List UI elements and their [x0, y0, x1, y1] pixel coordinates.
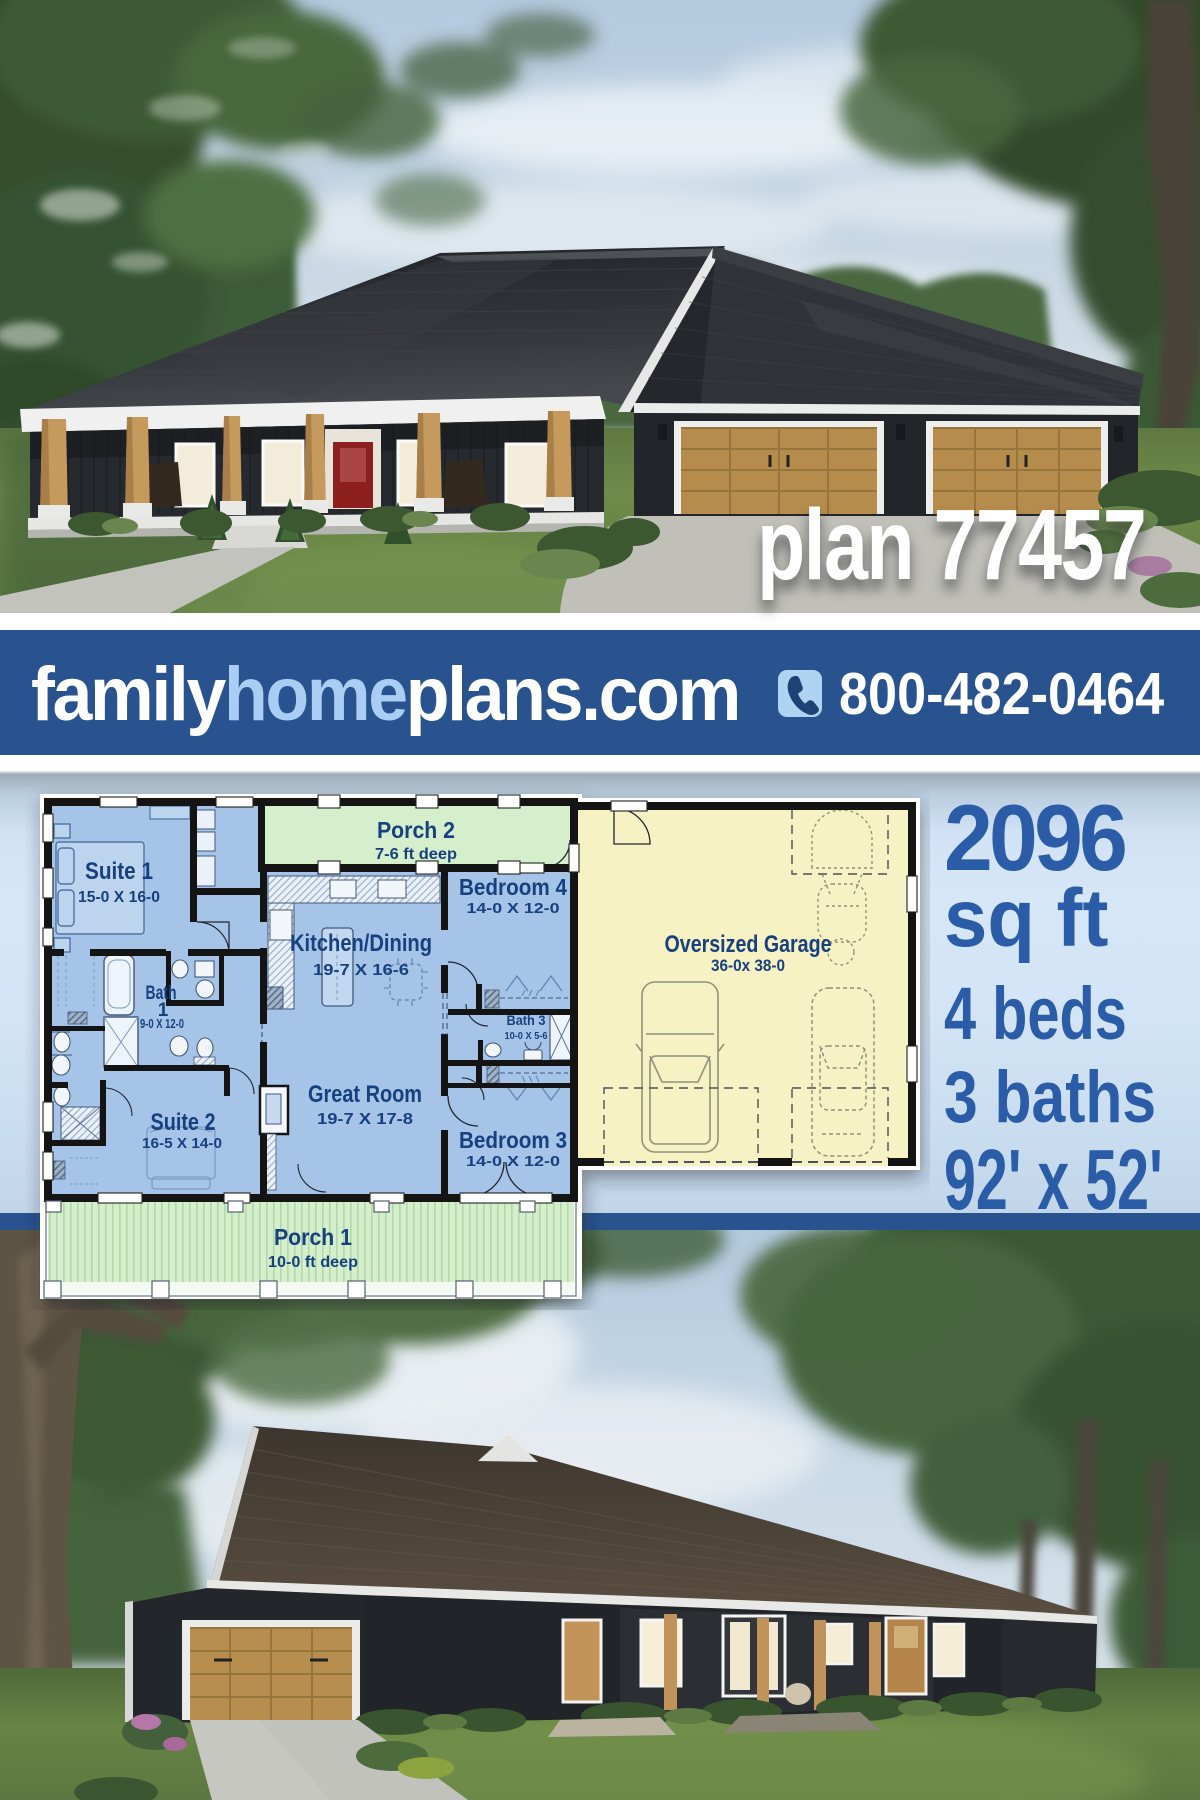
svg-text:Bedroom 3: Bedroom 3 [459, 1127, 567, 1153]
svg-text:19-7 X 16-6: 19-7 X 16-6 [313, 962, 409, 979]
svg-text:Suite 1: Suite 1 [85, 858, 153, 885]
svg-text:Great Room: Great Room [308, 1081, 422, 1108]
svg-text:7-6 ft deep: 7-6 ft deep [375, 846, 457, 863]
svg-text:14-0 X 12-0: 14-0 X 12-0 [467, 900, 560, 917]
svg-text:19-7 X 17-8: 19-7 X 17-8 [317, 1111, 413, 1128]
svg-text:10-0 ft deep: 10-0 ft deep [268, 1254, 358, 1271]
svg-text:14-0 X 12-0: 14-0 X 12-0 [466, 1153, 560, 1170]
svg-text:15-0 X 16-0: 15-0 X 16-0 [78, 889, 160, 906]
svg-text:9-0 X 12-0: 9-0 X 12-0 [140, 1017, 184, 1031]
svg-text:Suite 2: Suite 2 [151, 1109, 216, 1136]
svg-text:Porch 1: Porch 1 [274, 1224, 352, 1250]
svg-text:Kitchen/Dining: Kitchen/Dining [290, 930, 432, 957]
svg-text:16-5 X 14-0: 16-5 X 14-0 [142, 1135, 222, 1152]
svg-text:Bath 3: Bath 3 [507, 1012, 546, 1028]
svg-text:Oversized Garage: Oversized Garage [665, 931, 832, 958]
svg-text:Porch 2: Porch 2 [377, 817, 455, 843]
svg-text:10-0 X 5-6: 10-0 X 5-6 [505, 1030, 548, 1042]
svg-text:36-0x 38-0: 36-0x 38-0 [711, 956, 785, 975]
svg-text:Bedroom 4: Bedroom 4 [459, 874, 567, 900]
